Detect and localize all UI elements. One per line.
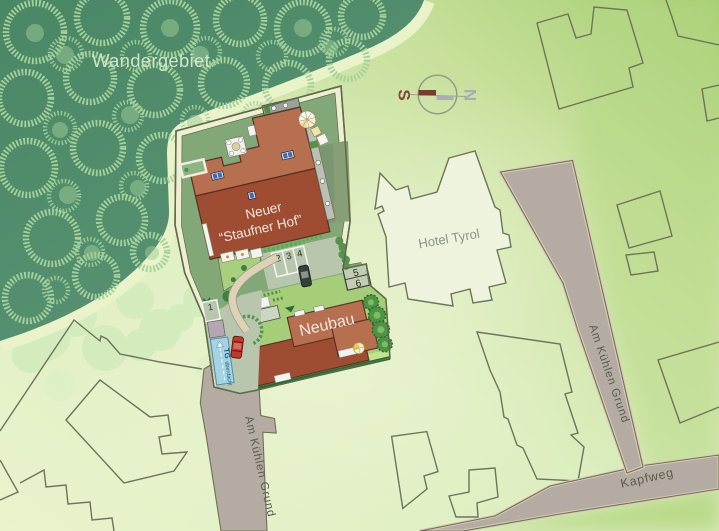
svg-text:Wandergebiet: Wandergebiet	[92, 50, 210, 71]
svg-text:S: S	[395, 89, 414, 100]
svg-text:TG: TG	[222, 348, 232, 360]
svg-text:N: N	[461, 89, 480, 101]
